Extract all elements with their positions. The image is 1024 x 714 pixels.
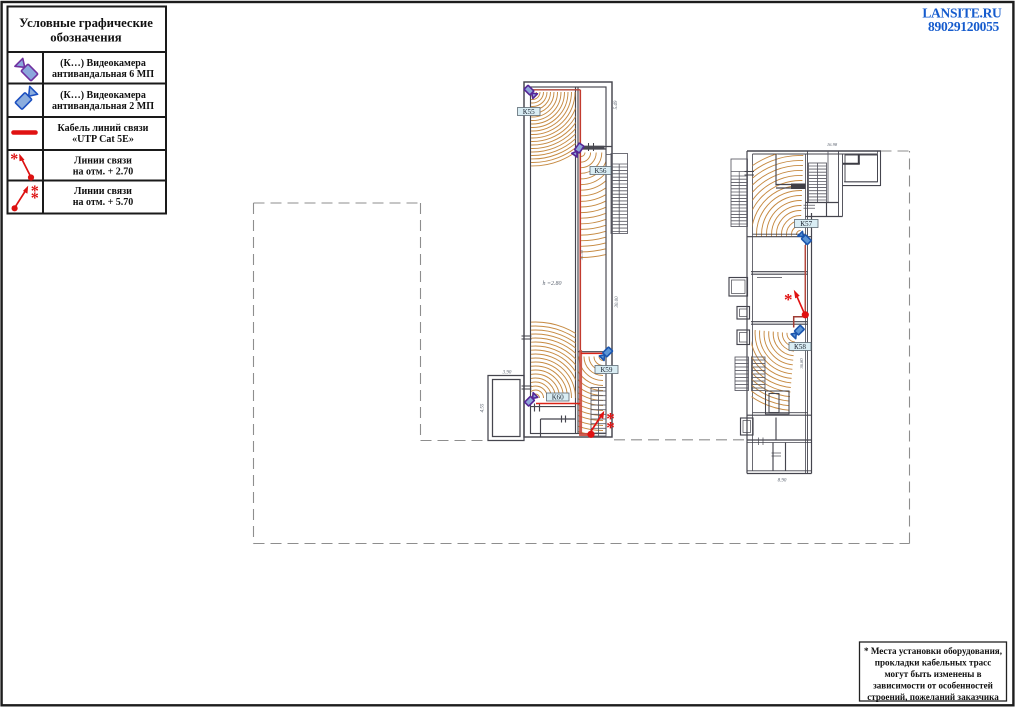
- svg-text:89029120055: 89029120055: [928, 19, 1000, 34]
- svg-text:30.00: 30.00: [615, 296, 620, 308]
- svg-text:36.80: 36.80: [799, 358, 804, 369]
- svg-text:«UTP Cat 5E»: «UTP Cat 5E»: [72, 134, 134, 145]
- svg-text:антивандальная 2 МП: антивандальная 2 МП: [52, 101, 154, 112]
- svg-text:Кабель линий связи: Кабель линий связи: [58, 123, 149, 134]
- svg-text:обозначения: обозначения: [50, 31, 122, 45]
- svg-text:Линии связи: Линии связи: [74, 186, 132, 197]
- svg-text:зависимости от особенностей: зависимости от особенностей: [873, 681, 993, 691]
- svg-text:8.90: 8.90: [778, 479, 787, 484]
- svg-text:строений, пожеланий заказчика: строений, пожеланий заказчика: [867, 692, 999, 702]
- svg-text:прокладки кабельных трасс: прокладки кабельных трасс: [875, 658, 992, 668]
- svg-text:*: *: [606, 418, 615, 437]
- svg-text:К57: К57: [800, 220, 812, 228]
- svg-text:16.98: 16.98: [827, 142, 838, 147]
- svg-text:К56: К56: [595, 167, 607, 175]
- svg-text:*: *: [31, 190, 39, 207]
- svg-text:4.55: 4.55: [481, 403, 486, 412]
- svg-text:5.49: 5.49: [614, 100, 619, 109]
- svg-text:(К…) Видеокамера: (К…) Видеокамера: [60, 90, 146, 101]
- svg-text:К60: К60: [552, 394, 564, 402]
- svg-text:(К…) Видеокамера: (К…) Видеокамера: [60, 58, 146, 69]
- svg-text:К58: К58: [794, 343, 806, 351]
- svg-text:Условные графические: Условные графические: [19, 16, 153, 30]
- svg-text:на отм. + 5.70: на отм. + 5.70: [73, 197, 134, 208]
- svg-text:* Места установки оборудования: * Места установки оборудования,: [864, 646, 1002, 656]
- svg-text:3.90: 3.90: [503, 371, 512, 376]
- svg-text:h =2.80: h =2.80: [542, 281, 561, 287]
- svg-text:Линии связи: Линии связи: [74, 156, 132, 167]
- svg-text:могут быть изменены в: могут быть изменены в: [884, 669, 981, 679]
- svg-text:К55: К55: [523, 108, 535, 116]
- svg-text:*: *: [10, 151, 18, 168]
- svg-text:31.50: 31.50: [579, 249, 584, 260]
- svg-text:*: *: [784, 290, 793, 309]
- svg-text:антивандальная 6 МП: антивандальная 6 МП: [52, 69, 154, 80]
- svg-text:К59: К59: [601, 366, 613, 374]
- svg-text:на отм. + 2.70: на отм. + 2.70: [73, 167, 134, 178]
